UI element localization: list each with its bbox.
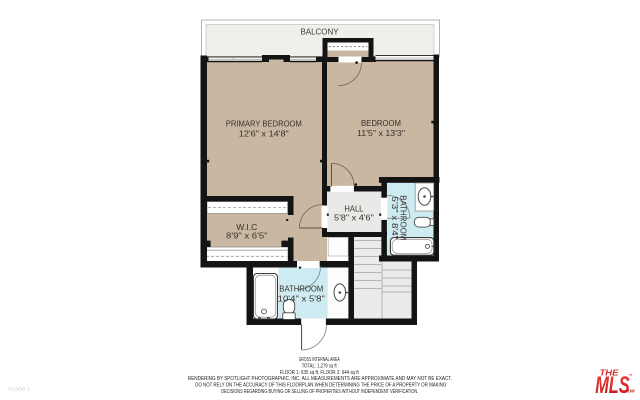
svg-text:BATHROOM: BATHROOM (399, 195, 408, 240)
svg-text:™: ™ (628, 373, 632, 378)
svg-text:FLOOR 1: FLOOR 1 (8, 387, 30, 393)
svg-text:HALL: HALL (344, 204, 363, 213)
svg-text:W.I.C: W.I.C (236, 223, 257, 232)
svg-text:10'4" x 5'8": 10'4" x 5'8" (278, 295, 325, 304)
svg-text:5'8" x 4'6": 5'8" x 4'6" (334, 213, 374, 222)
svg-text:TOTAL: 1,279 sq ft: TOTAL: 1,279 sq ft (302, 363, 337, 369)
svg-text:PRIMARY BEDROOM: PRIMARY BEDROOM (226, 120, 302, 129)
svg-text:BALCONY: BALCONY (301, 28, 340, 37)
svg-text:5'3" x 8'4": 5'3" x 8'4" (390, 196, 399, 239)
svg-text:BATHROOM: BATHROOM (279, 285, 323, 294)
svg-text:.COM: .COM (624, 388, 635, 393)
svg-text:DECISIONS REGARDING BUYING OR: DECISIONS REGARDING BUYING OR SELLING OF… (221, 389, 418, 395)
svg-text:BEDROOM: BEDROOM (361, 119, 401, 128)
svg-text:MLS: MLS (595, 372, 630, 399)
svg-text:DO NOT RELY ON THE ACCURACY OF: DO NOT RELY ON THE ACCURACY OF THIS FLOO… (195, 383, 446, 389)
svg-text:11'5" x 13'3": 11'5" x 13'3" (357, 129, 405, 138)
svg-text:12'6" x 14'8": 12'6" x 14'8" (239, 129, 289, 138)
svg-text:FLOOR 1: 635 sq ft, FLOOR 2: 6: FLOOR 1: 635 sq ft, FLOOR 2: 644 sq ft (280, 370, 359, 376)
svg-text:8'9" x 6'5": 8'9" x 6'5" (226, 232, 268, 241)
svg-text:RENDERING BY SPOTLIGHT PHOTOGR: RENDERING BY SPOTLIGHT PHOTOGRAPHIC, INC… (188, 376, 452, 382)
svg-text:GROSS INTERNAL AREA: GROSS INTERNAL AREA (299, 357, 340, 363)
